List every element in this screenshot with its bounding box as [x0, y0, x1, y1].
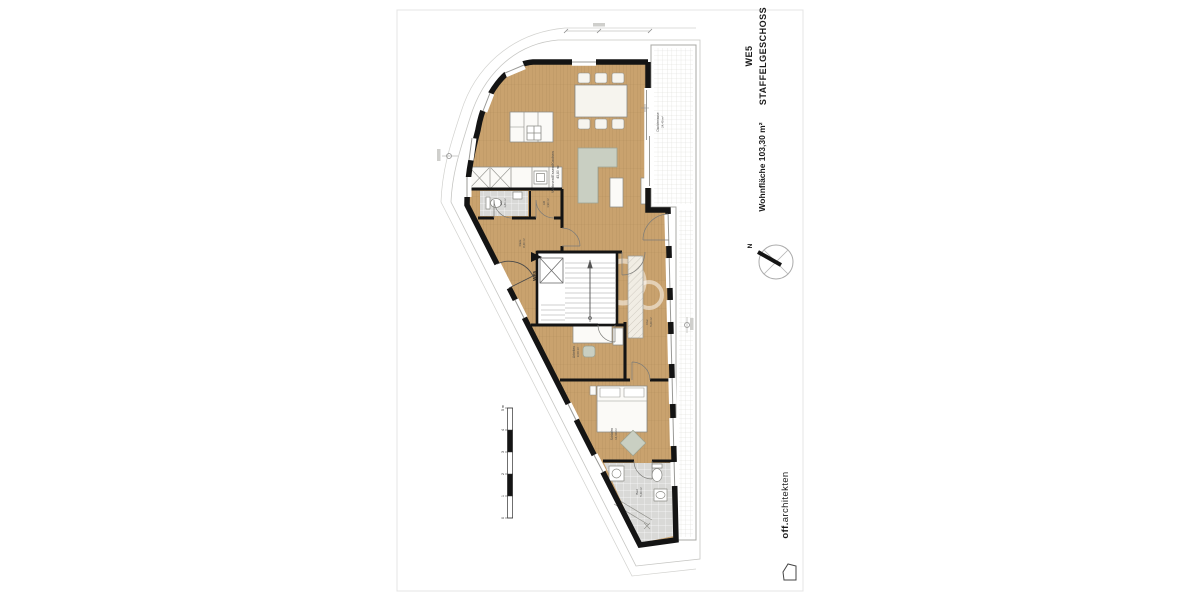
logo-text-rest: architekten [780, 471, 791, 522]
nightstand [590, 386, 596, 395]
hall-area: 8,40 m² [522, 238, 526, 248]
pillow [624, 388, 644, 397]
kitchen-counter [469, 167, 562, 189]
logo-text-bold: off. [780, 522, 791, 538]
desk-chair [583, 346, 595, 357]
pillow [600, 388, 620, 397]
floor-plan-drawing: Wohnen/Essen/Kochen 43,80 m² Dachterrass… [0, 0, 1200, 600]
office-cabinet [613, 328, 623, 345]
coffee-table [610, 178, 623, 207]
wc-area: 1,80 m² [503, 198, 507, 208]
terrace-label: Dachterrasse [656, 112, 660, 131]
toilet [652, 464, 662, 482]
corridor-area: 5,60 m² [649, 317, 653, 327]
scale-tick-1: 1 [501, 495, 505, 497]
floor-title: STAFFELGESCHOSS [758, 7, 768, 105]
office-area: 9,60 m² [576, 347, 580, 357]
entrance-label: WE5 [532, 271, 537, 281]
dining-table [575, 73, 627, 129]
terrace-tiles-strip [679, 210, 693, 537]
drawing-canvas: Wohnen/Essen/Kochen 43,80 m² Dachterrass… [0, 0, 1200, 600]
storage-area: 1,90 m² [546, 198, 550, 208]
island-sink [527, 126, 541, 140]
logo-text: off.architekten [780, 471, 791, 538]
scale-tick-5: 5 m [501, 405, 505, 411]
scale-tick-0: 0 [501, 517, 505, 519]
bath-area: 5,40 m² [639, 487, 643, 497]
washing-machine [609, 466, 624, 481]
bedroom-area: 14,60 m² [614, 428, 618, 440]
wardrobe [628, 256, 643, 338]
desk [573, 326, 612, 343]
unit-title: WE5 [744, 45, 754, 66]
scale-tick-2: 2 [501, 473, 505, 475]
scale-tick-4: 4 [501, 429, 505, 431]
living-area: 43,80 m² [556, 164, 560, 178]
kitchen-island [510, 112, 553, 142]
terrace-area: 24,40 m² [661, 116, 665, 128]
sink [654, 489, 667, 501]
scale-tick-3: 3 [501, 451, 505, 453]
north-label: N [747, 243, 754, 248]
wc-sink [513, 192, 522, 199]
area-title: Wohnfläche 103,30 m² [757, 122, 767, 211]
living-label: Wohnen/Essen/Kochen [550, 151, 555, 193]
